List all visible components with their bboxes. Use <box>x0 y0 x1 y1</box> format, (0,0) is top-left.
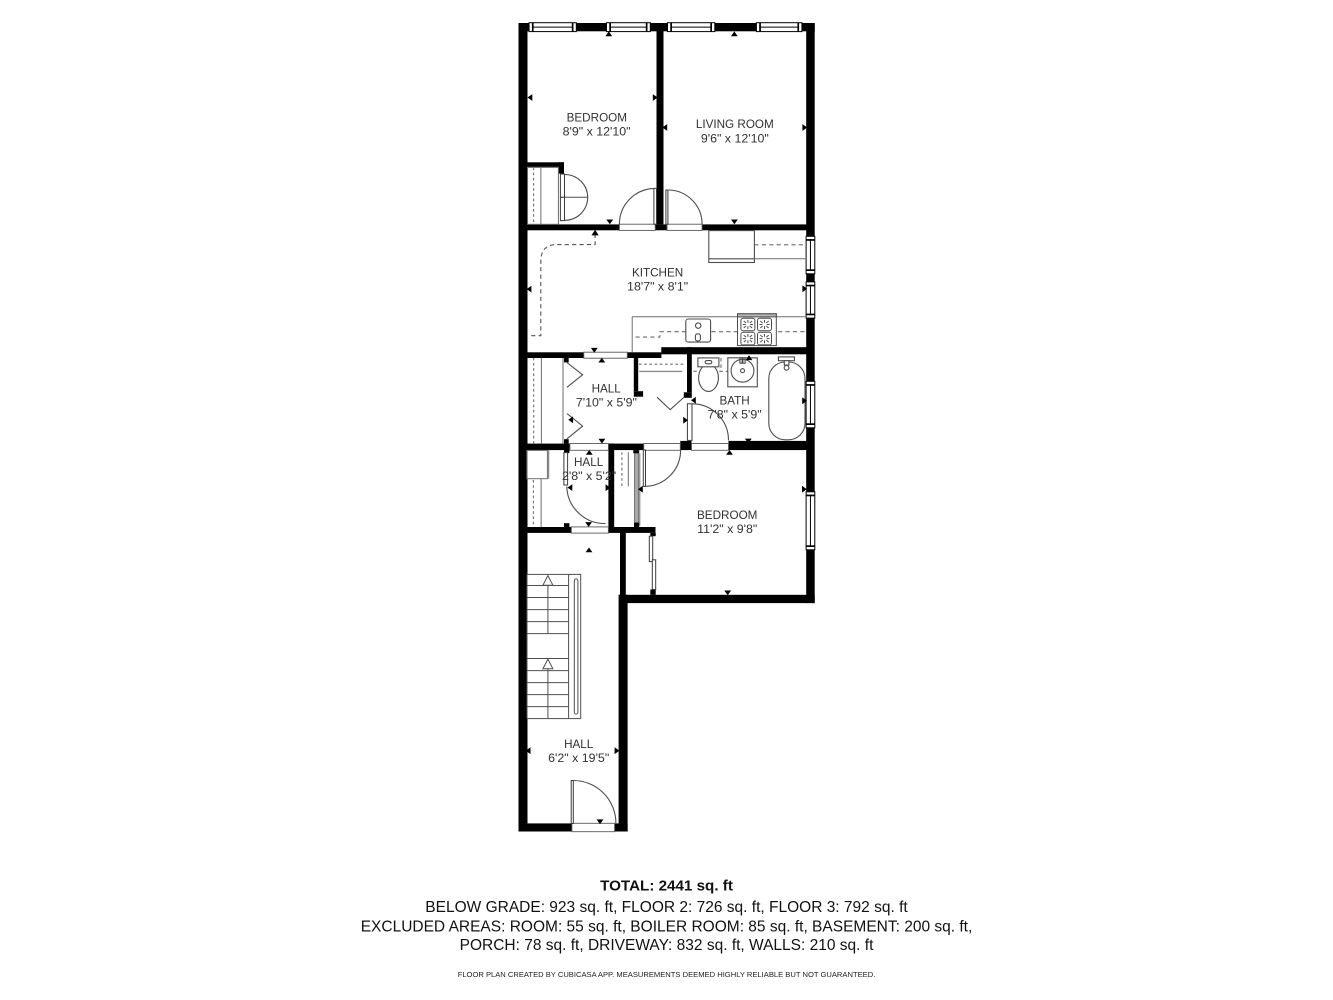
svg-text:6'2" x 19'5": 6'2" x 19'5" <box>548 751 609 765</box>
svg-text:LIVING ROOM: LIVING ROOM <box>696 118 774 131</box>
svg-text:HALL: HALL <box>574 456 604 469</box>
svg-text:8'9" x 12'10": 8'9" x 12'10" <box>563 124 631 138</box>
svg-text:9'6" x 12'10": 9'6" x 12'10" <box>701 131 769 145</box>
svg-text:2'8" x 5'2": 2'8" x 5'2" <box>562 469 616 483</box>
svg-text:BEDROOM: BEDROOM <box>697 509 757 522</box>
svg-text:BEDROOM: BEDROOM <box>567 111 627 124</box>
svg-text:7'8" x 5'9": 7'8" x 5'9" <box>708 407 762 421</box>
svg-text:HALL: HALL <box>592 383 622 396</box>
svg-text:EXCLUDED AREAS: ROOM: 55 sq. f: EXCLUDED AREAS: ROOM: 55 sq. ft, BOILER … <box>361 918 973 935</box>
svg-text:18'7" x 8'1": 18'7" x 8'1" <box>627 280 688 294</box>
svg-text:TOTAL: 2441 sq. ft: TOTAL: 2441 sq. ft <box>600 878 733 895</box>
svg-text:HALL: HALL <box>564 738 594 751</box>
svg-text:BATH: BATH <box>719 395 749 408</box>
svg-text:7'10" x 5'9": 7'10" x 5'9" <box>576 395 637 409</box>
svg-text:11'2" x 9'8": 11'2" x 9'8" <box>697 522 757 536</box>
svg-text:KITCHEN: KITCHEN <box>632 267 683 280</box>
svg-text:PORCH: 78 sq. ft, DRIVEWAY: 83: PORCH: 78 sq. ft, DRIVEWAY: 832 sq. ft, … <box>460 937 874 954</box>
svg-text:BELOW GRADE: 923 sq. ft, FLOOR: BELOW GRADE: 923 sq. ft, FLOOR 2: 726 sq… <box>425 899 908 916</box>
svg-text:FLOOR PLAN CREATED BY CUBICASA: FLOOR PLAN CREATED BY CUBICASA APP. MEAS… <box>458 970 876 979</box>
